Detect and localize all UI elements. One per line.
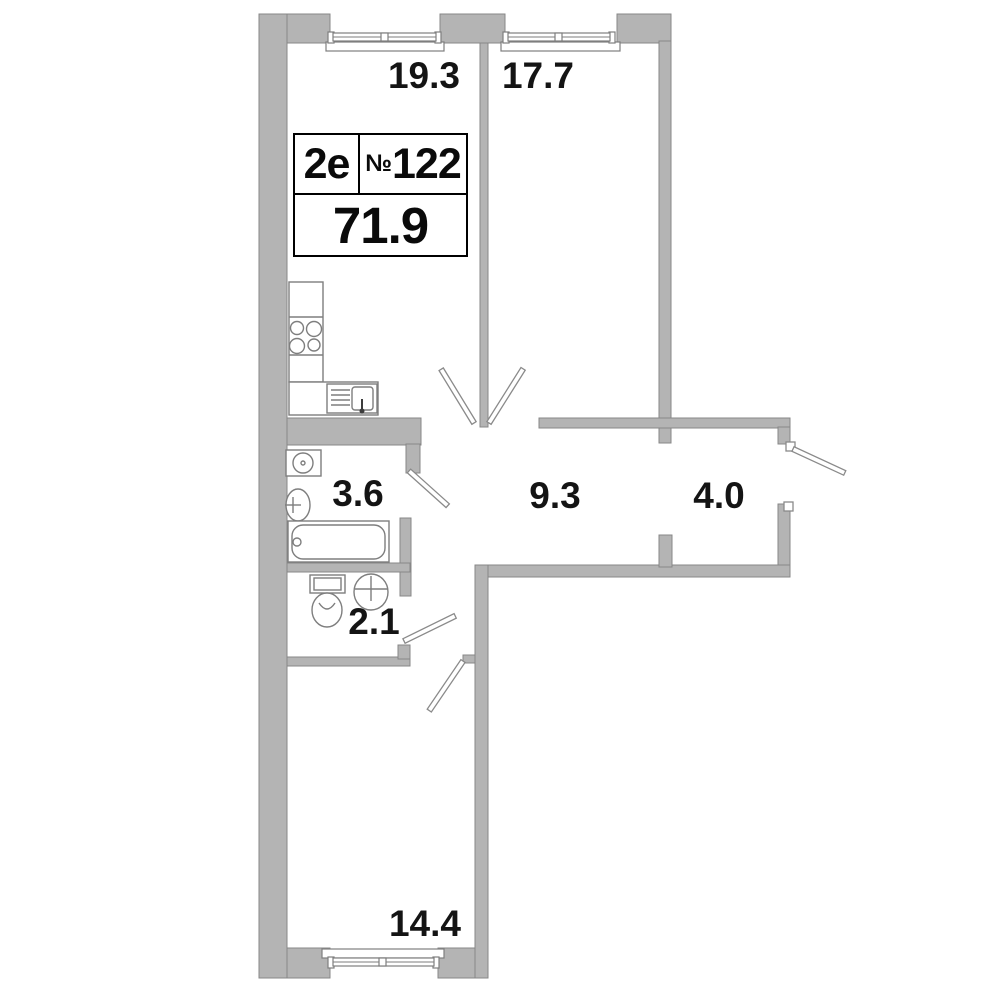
- total-area-value: 71.9: [295, 195, 466, 255]
- apartment-number: 122: [392, 140, 461, 189]
- wall-divider-rooms-top: [480, 43, 488, 427]
- window-kitchen-living: [326, 32, 444, 51]
- wall-top-segment-a: [287, 14, 330, 43]
- wall-right-upper: [659, 41, 671, 443]
- room-area-label-bathroom: 3.6: [332, 473, 383, 514]
- door-room-bottom: [427, 660, 465, 712]
- bathtub-icon: [288, 521, 389, 562]
- floor-plan-page: 19.3 17.7 3.6 9.3 4.0 2.1 14.4 2e №122 7…: [0, 0, 1000, 1000]
- room-area-label-room-upper-right: 17.7: [502, 55, 574, 96]
- wall-hall-bottom: [475, 565, 790, 577]
- window-mullion-tick: [381, 33, 388, 41]
- door-room-upper-right: [487, 368, 525, 425]
- kitchen-sink-icon: [327, 384, 377, 414]
- wall-wc-door-jamb: [398, 645, 410, 659]
- wall-top-segment-b: [440, 14, 505, 43]
- window-mullion-tick: [555, 33, 562, 41]
- toilet-icon: [310, 575, 345, 627]
- door-bathroom: [407, 469, 449, 507]
- room-area-label-kitchen-living: 19.3: [388, 55, 460, 96]
- wall-stub-corridor-hall: [659, 535, 672, 567]
- bath-sink-icon: [285, 489, 310, 521]
- wall-bathtub-wc: [287, 563, 410, 572]
- window-mullion-tick: [379, 958, 386, 966]
- wall-room-bottom-right: [475, 565, 488, 978]
- number-sign: №: [365, 150, 392, 178]
- door-entrance: [784, 442, 846, 511]
- plan-type-code: 2e: [295, 135, 360, 193]
- door-wc: [403, 614, 456, 644]
- wall-top-segment-c: [617, 14, 671, 43]
- room-area-label-wc: 2.1: [348, 601, 399, 642]
- room-area-label-corridor: 9.3: [529, 475, 580, 516]
- room-area-label-room-bottom: 14.4: [389, 903, 461, 944]
- window-room-upper-right: [501, 32, 620, 51]
- wall-left-exterior: [259, 14, 287, 978]
- wall-corridor-top: [539, 418, 790, 428]
- floor-plan-drawing: 19.3 17.7 3.6 9.3 4.0 2.1 14.4: [0, 0, 1000, 1000]
- unit-info-card-top-row: 2e №122: [295, 135, 466, 195]
- wall-kitchen-bathroom: [287, 418, 421, 445]
- wall-bathroom-door-jamb: [406, 444, 420, 473]
- room-area-label-hallway: 4.0: [693, 475, 744, 516]
- wall-wc-bottom: [287, 657, 410, 666]
- unit-info-card: 2e №122 71.9: [293, 133, 468, 257]
- wall-bathroom-right: [400, 518, 411, 596]
- window-room-bottom: [322, 949, 444, 968]
- door-kitchen-living: [439, 368, 476, 424]
- door-hinge-block: [784, 502, 793, 511]
- washing-machine-icon: [286, 450, 321, 476]
- apartment-number-cell: №122: [360, 135, 466, 193]
